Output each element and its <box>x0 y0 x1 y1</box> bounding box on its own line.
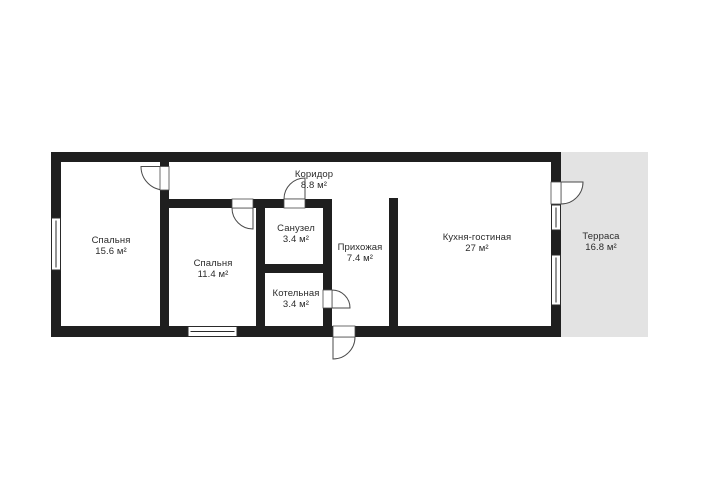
room-area: 8.8 м² <box>295 180 333 191</box>
wall-top <box>51 152 561 162</box>
room-name: Прихожая <box>338 242 383 253</box>
room-area: 11.4 м² <box>194 269 233 280</box>
room-name: Терраса <box>582 231 619 242</box>
door-leaf-boiler-room <box>323 290 332 308</box>
window-kitchen-right-1 <box>552 205 561 230</box>
floor-plan: Спальня 15.6 м² Спальня 11.4 м² Санузел … <box>0 0 702 502</box>
room-label-bedroom-2: Спальня 11.4 м² <box>194 258 233 280</box>
wall-bottom <box>51 326 561 337</box>
window-bedroom-1-left <box>52 218 61 270</box>
door-arc-entrance <box>333 337 355 359</box>
room-label-corridor: Коридор 8.8 м² <box>295 169 333 191</box>
door-leaf-bedroom-1 <box>160 167 169 191</box>
room-label-hallway: Прихожая 7.4 м² <box>338 242 383 264</box>
room-label-terrace: Терраса 16.8 м² <box>582 231 619 253</box>
door-leaf-entrance <box>333 326 355 337</box>
room-label-bathroom: Санузел 3.4 м² <box>277 223 315 245</box>
room-area: 3.4 м² <box>273 299 320 310</box>
door-leaf-bedroom-2 <box>232 199 253 208</box>
wall-kitchen-divider <box>389 198 398 326</box>
door-leaf-bathroom <box>284 199 305 208</box>
door-arc-bedroom-2 <box>232 208 253 229</box>
room-name: Коридор <box>295 169 333 180</box>
room-name: Спальня <box>194 258 233 269</box>
room-area: 27 м² <box>443 243 512 254</box>
room-area: 16.8 м² <box>582 242 619 253</box>
room-label-bedroom-1: Спальня 15.6 м² <box>92 235 131 257</box>
wall-right <box>551 152 561 337</box>
room-label-boiler-room: Котельная 3.4 м² <box>273 288 320 310</box>
wall-bathroom-boiler-divider <box>256 264 332 273</box>
room-area: 3.4 м² <box>277 234 315 245</box>
door-leaf-terrace <box>551 182 561 204</box>
window-kitchen-right-2 <box>552 255 561 305</box>
room-name: Кухня-гостиная <box>443 232 512 243</box>
room-label-kitchen-living-room: Кухня-гостиная 27 м² <box>443 232 512 254</box>
room-name: Санузел <box>277 223 315 234</box>
window-bedroom-2-bottom <box>188 327 237 337</box>
room-area: 15.6 м² <box>92 246 131 257</box>
door-arc-boiler-room <box>332 290 350 308</box>
room-name: Спальня <box>92 235 131 246</box>
room-area: 7.4 м² <box>338 253 383 264</box>
room-name: Котельная <box>273 288 320 299</box>
